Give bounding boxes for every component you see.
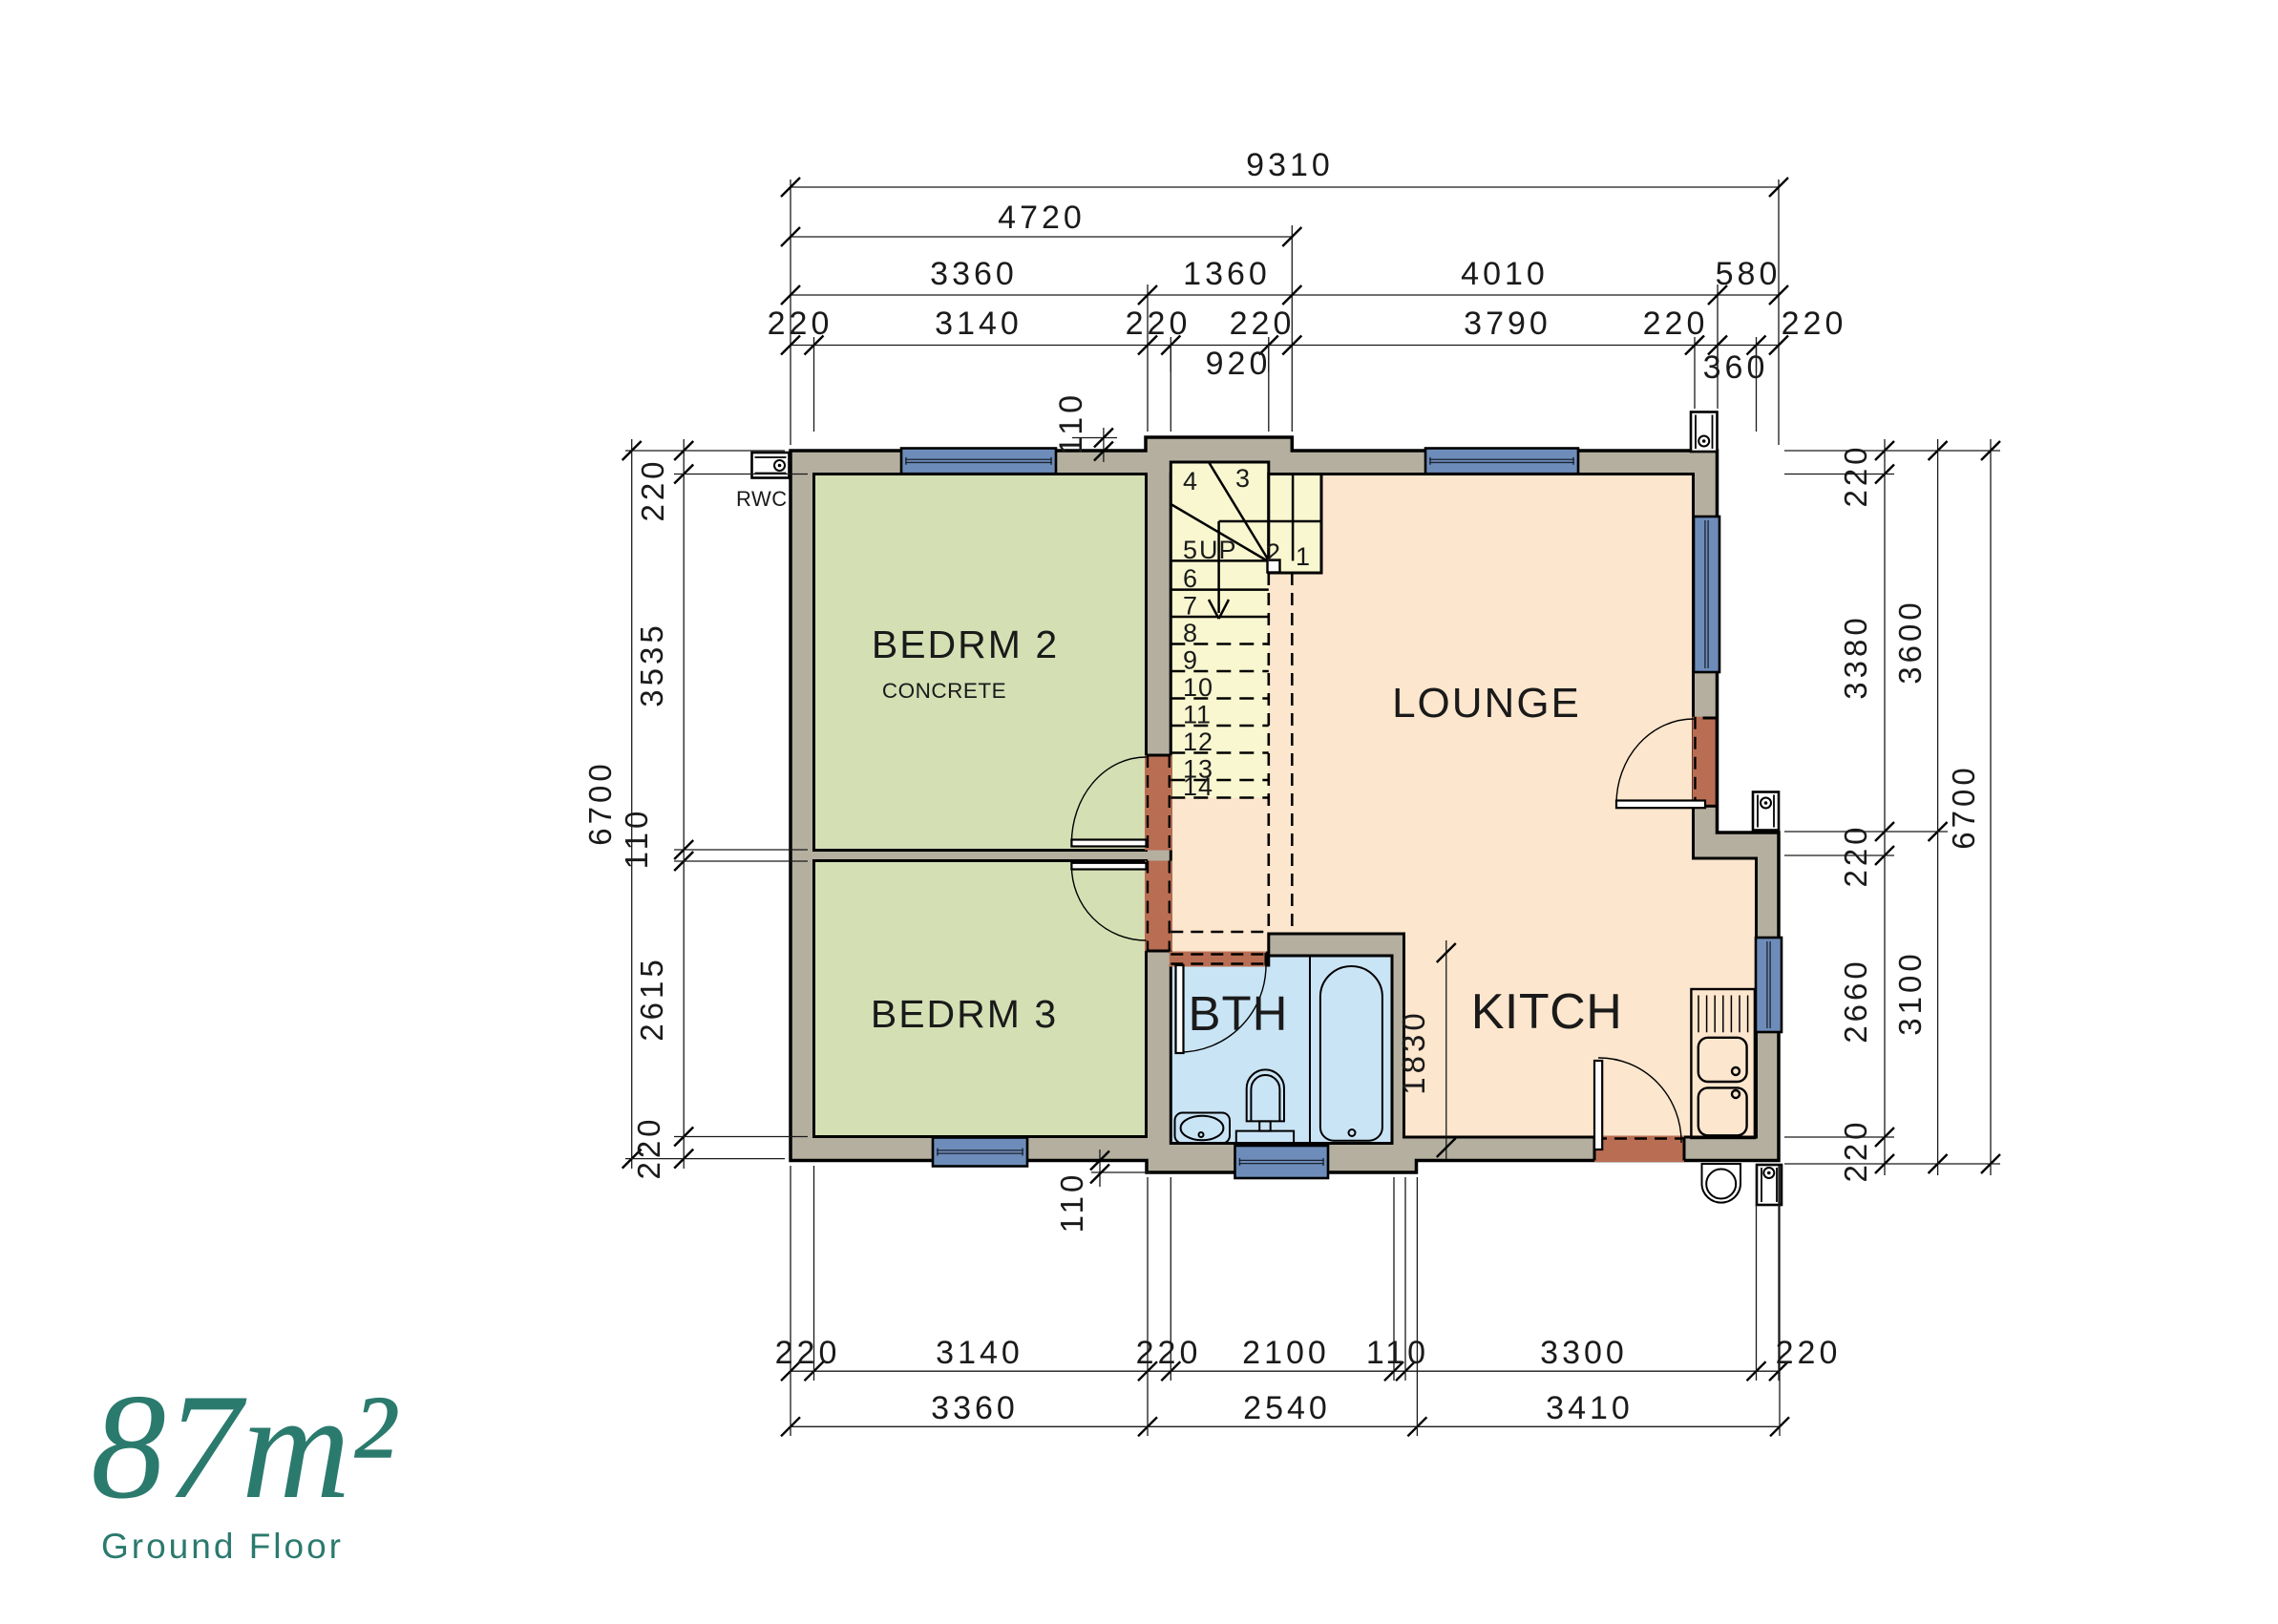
svg-text:Ground Floor: Ground Floor (101, 1527, 344, 1566)
svg-text:1: 1 (1296, 542, 1311, 571)
svg-text:6700: 6700 (582, 760, 618, 845)
svg-text:220: 220 (1136, 1335, 1202, 1371)
svg-text:8: 8 (1183, 619, 1198, 647)
svg-text:11: 11 (1183, 701, 1212, 729)
svg-text:220: 220 (635, 457, 670, 521)
svg-text:220: 220 (775, 1335, 841, 1371)
svg-text:110: 110 (619, 808, 654, 870)
svg-text:2540: 2540 (1243, 1390, 1331, 1426)
svg-text:4010: 4010 (1461, 256, 1549, 292)
svg-text:2615: 2615 (634, 956, 669, 1041)
svg-text:14: 14 (1183, 772, 1213, 801)
svg-text:3100: 3100 (1892, 950, 1928, 1035)
svg-text:580: 580 (1716, 256, 1782, 292)
svg-text:3410: 3410 (1546, 1390, 1634, 1426)
svg-text:220: 220 (1838, 1118, 1873, 1182)
svg-text:BEDRM 2: BEDRM 2 (872, 622, 1059, 666)
svg-text:110: 110 (1053, 391, 1089, 454)
svg-text:220: 220 (1838, 823, 1873, 887)
svg-text:BEDRM 3: BEDRM 3 (871, 992, 1058, 1036)
svg-text:UP: UP (1199, 536, 1237, 564)
svg-text:1360: 1360 (1183, 256, 1271, 292)
svg-text:3380: 3380 (1838, 614, 1873, 699)
svg-text:RWC: RWC (736, 487, 788, 511)
svg-text:220: 220 (1126, 306, 1192, 342)
svg-text:110: 110 (1054, 1171, 1089, 1234)
svg-text:CONCRETE: CONCRETE (882, 679, 1006, 703)
svg-text:2: 2 (1266, 538, 1281, 567)
svg-text:220: 220 (1643, 306, 1709, 342)
svg-text:220: 220 (631, 1115, 666, 1179)
svg-text:3790: 3790 (1464, 306, 1551, 342)
svg-text:12: 12 (1183, 728, 1213, 756)
svg-text:3: 3 (1235, 464, 1251, 493)
svg-text:3140: 3140 (936, 1335, 1023, 1371)
svg-text:110: 110 (1366, 1335, 1429, 1371)
svg-text:9310: 9310 (1246, 147, 1334, 183)
svg-text:6700: 6700 (1946, 764, 1981, 849)
svg-text:2100: 2100 (1242, 1335, 1330, 1371)
svg-text:3360: 3360 (931, 1390, 1019, 1426)
svg-text:BTH: BTH (1189, 986, 1289, 1041)
svg-text:87m²: 87m² (91, 1363, 398, 1530)
svg-text:5: 5 (1183, 536, 1198, 564)
svg-text:LOUNGE: LOUNGE (1392, 680, 1581, 727)
svg-text:220: 220 (1776, 1335, 1842, 1371)
svg-text:2660: 2660 (1838, 958, 1873, 1043)
svg-text:220: 220 (768, 306, 833, 342)
svg-text:3300: 3300 (1540, 1335, 1628, 1371)
svg-text:4720: 4720 (998, 200, 1086, 236)
svg-text:1830: 1830 (1396, 1009, 1431, 1094)
svg-text:10: 10 (1183, 673, 1213, 702)
svg-text:3360: 3360 (930, 256, 1018, 292)
svg-text:3140: 3140 (935, 306, 1023, 342)
svg-text:7: 7 (1183, 592, 1198, 621)
svg-text:220: 220 (1782, 306, 1847, 342)
svg-text:360: 360 (1703, 349, 1769, 386)
svg-text:9: 9 (1183, 646, 1198, 675)
svg-text:220: 220 (1230, 306, 1296, 342)
svg-text:4: 4 (1183, 467, 1198, 496)
svg-text:3535: 3535 (634, 622, 669, 707)
svg-text:3600: 3600 (1892, 599, 1928, 684)
svg-text:220: 220 (1838, 443, 1873, 507)
svg-text:KITCH: KITCH (1471, 984, 1623, 1040)
svg-text:6: 6 (1183, 564, 1198, 593)
svg-text:920: 920 (1206, 346, 1272, 382)
